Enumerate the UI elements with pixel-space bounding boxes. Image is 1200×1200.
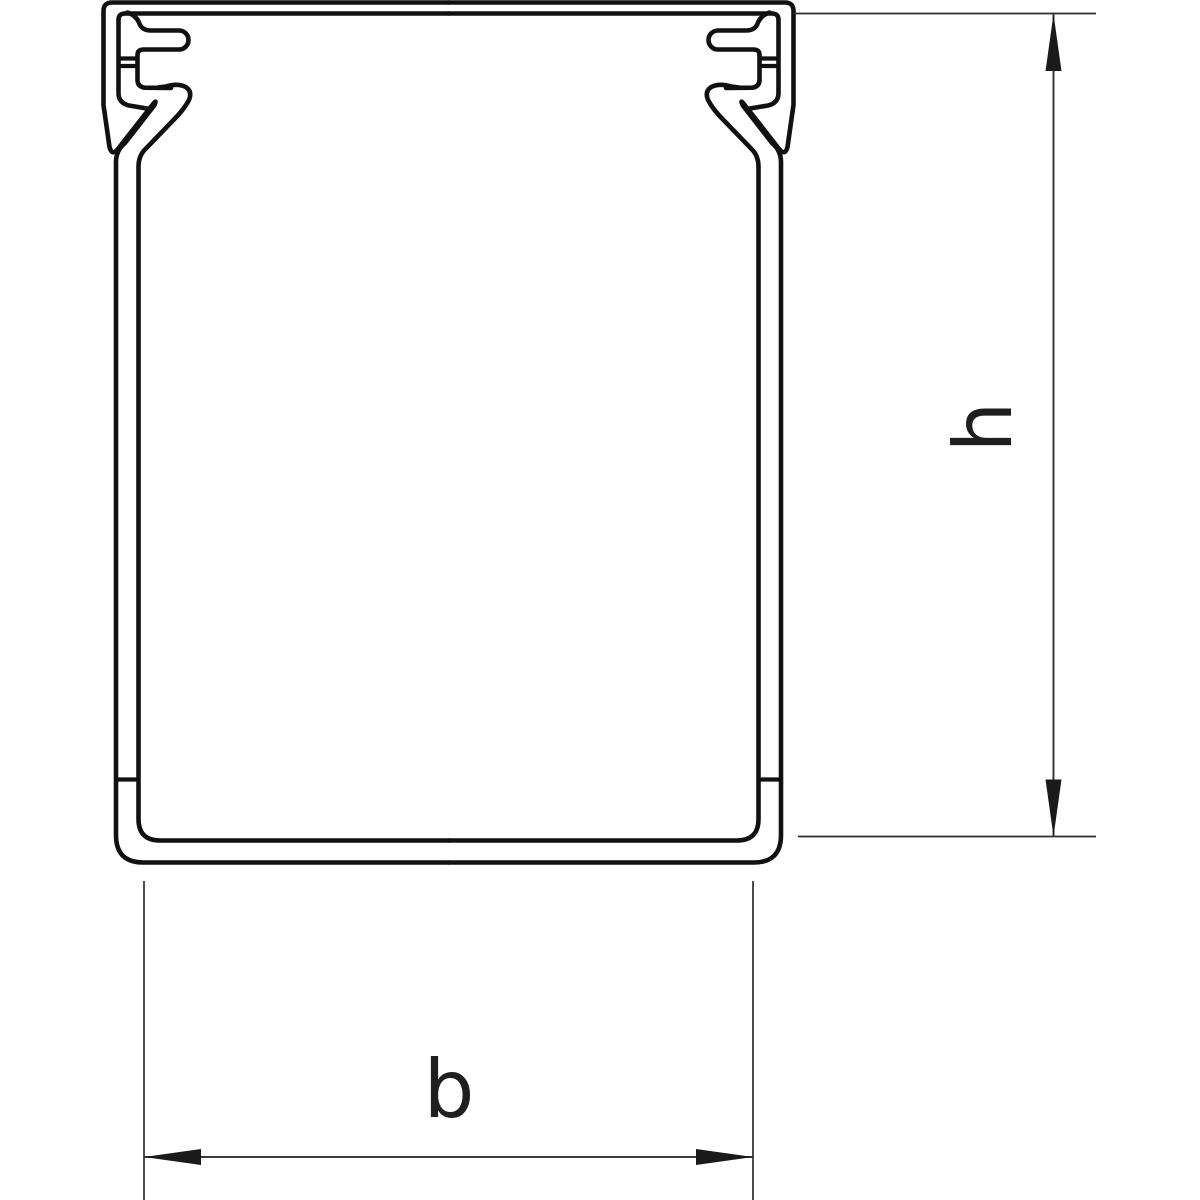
b-dimension-label: b <box>424 1043 475 1136</box>
profile-left-half <box>104 3 449 863</box>
dimension-h: h <box>794 14 1097 837</box>
dimension-b: b <box>144 881 753 1200</box>
h-dimension-label: h <box>937 402 1030 453</box>
profile-right-half <box>449 3 794 863</box>
outer-contour-line <box>104 3 449 863</box>
h-arrow-down-icon <box>1046 780 1062 837</box>
cover-inner-line <box>119 14 449 110</box>
duct-profile <box>104 3 794 863</box>
joint-tick-lines <box>120 59 136 67</box>
technical-drawing-page: h b <box>0 0 1200 1200</box>
clip-latch-detail <box>128 13 189 89</box>
cover-inner-line <box>449 14 779 110</box>
clip-latch-detail <box>709 13 770 89</box>
b-arrow-left-icon <box>144 1149 201 1165</box>
duct-cross-section-drawing: h b <box>0 0 1200 1200</box>
joint-tick-lines <box>761 59 777 67</box>
outer-contour-line <box>449 3 794 863</box>
h-arrow-up-icon <box>1046 14 1062 71</box>
inner-contour-line <box>449 85 759 841</box>
inner-contour-line <box>139 85 449 841</box>
b-arrow-right-icon <box>696 1149 753 1165</box>
